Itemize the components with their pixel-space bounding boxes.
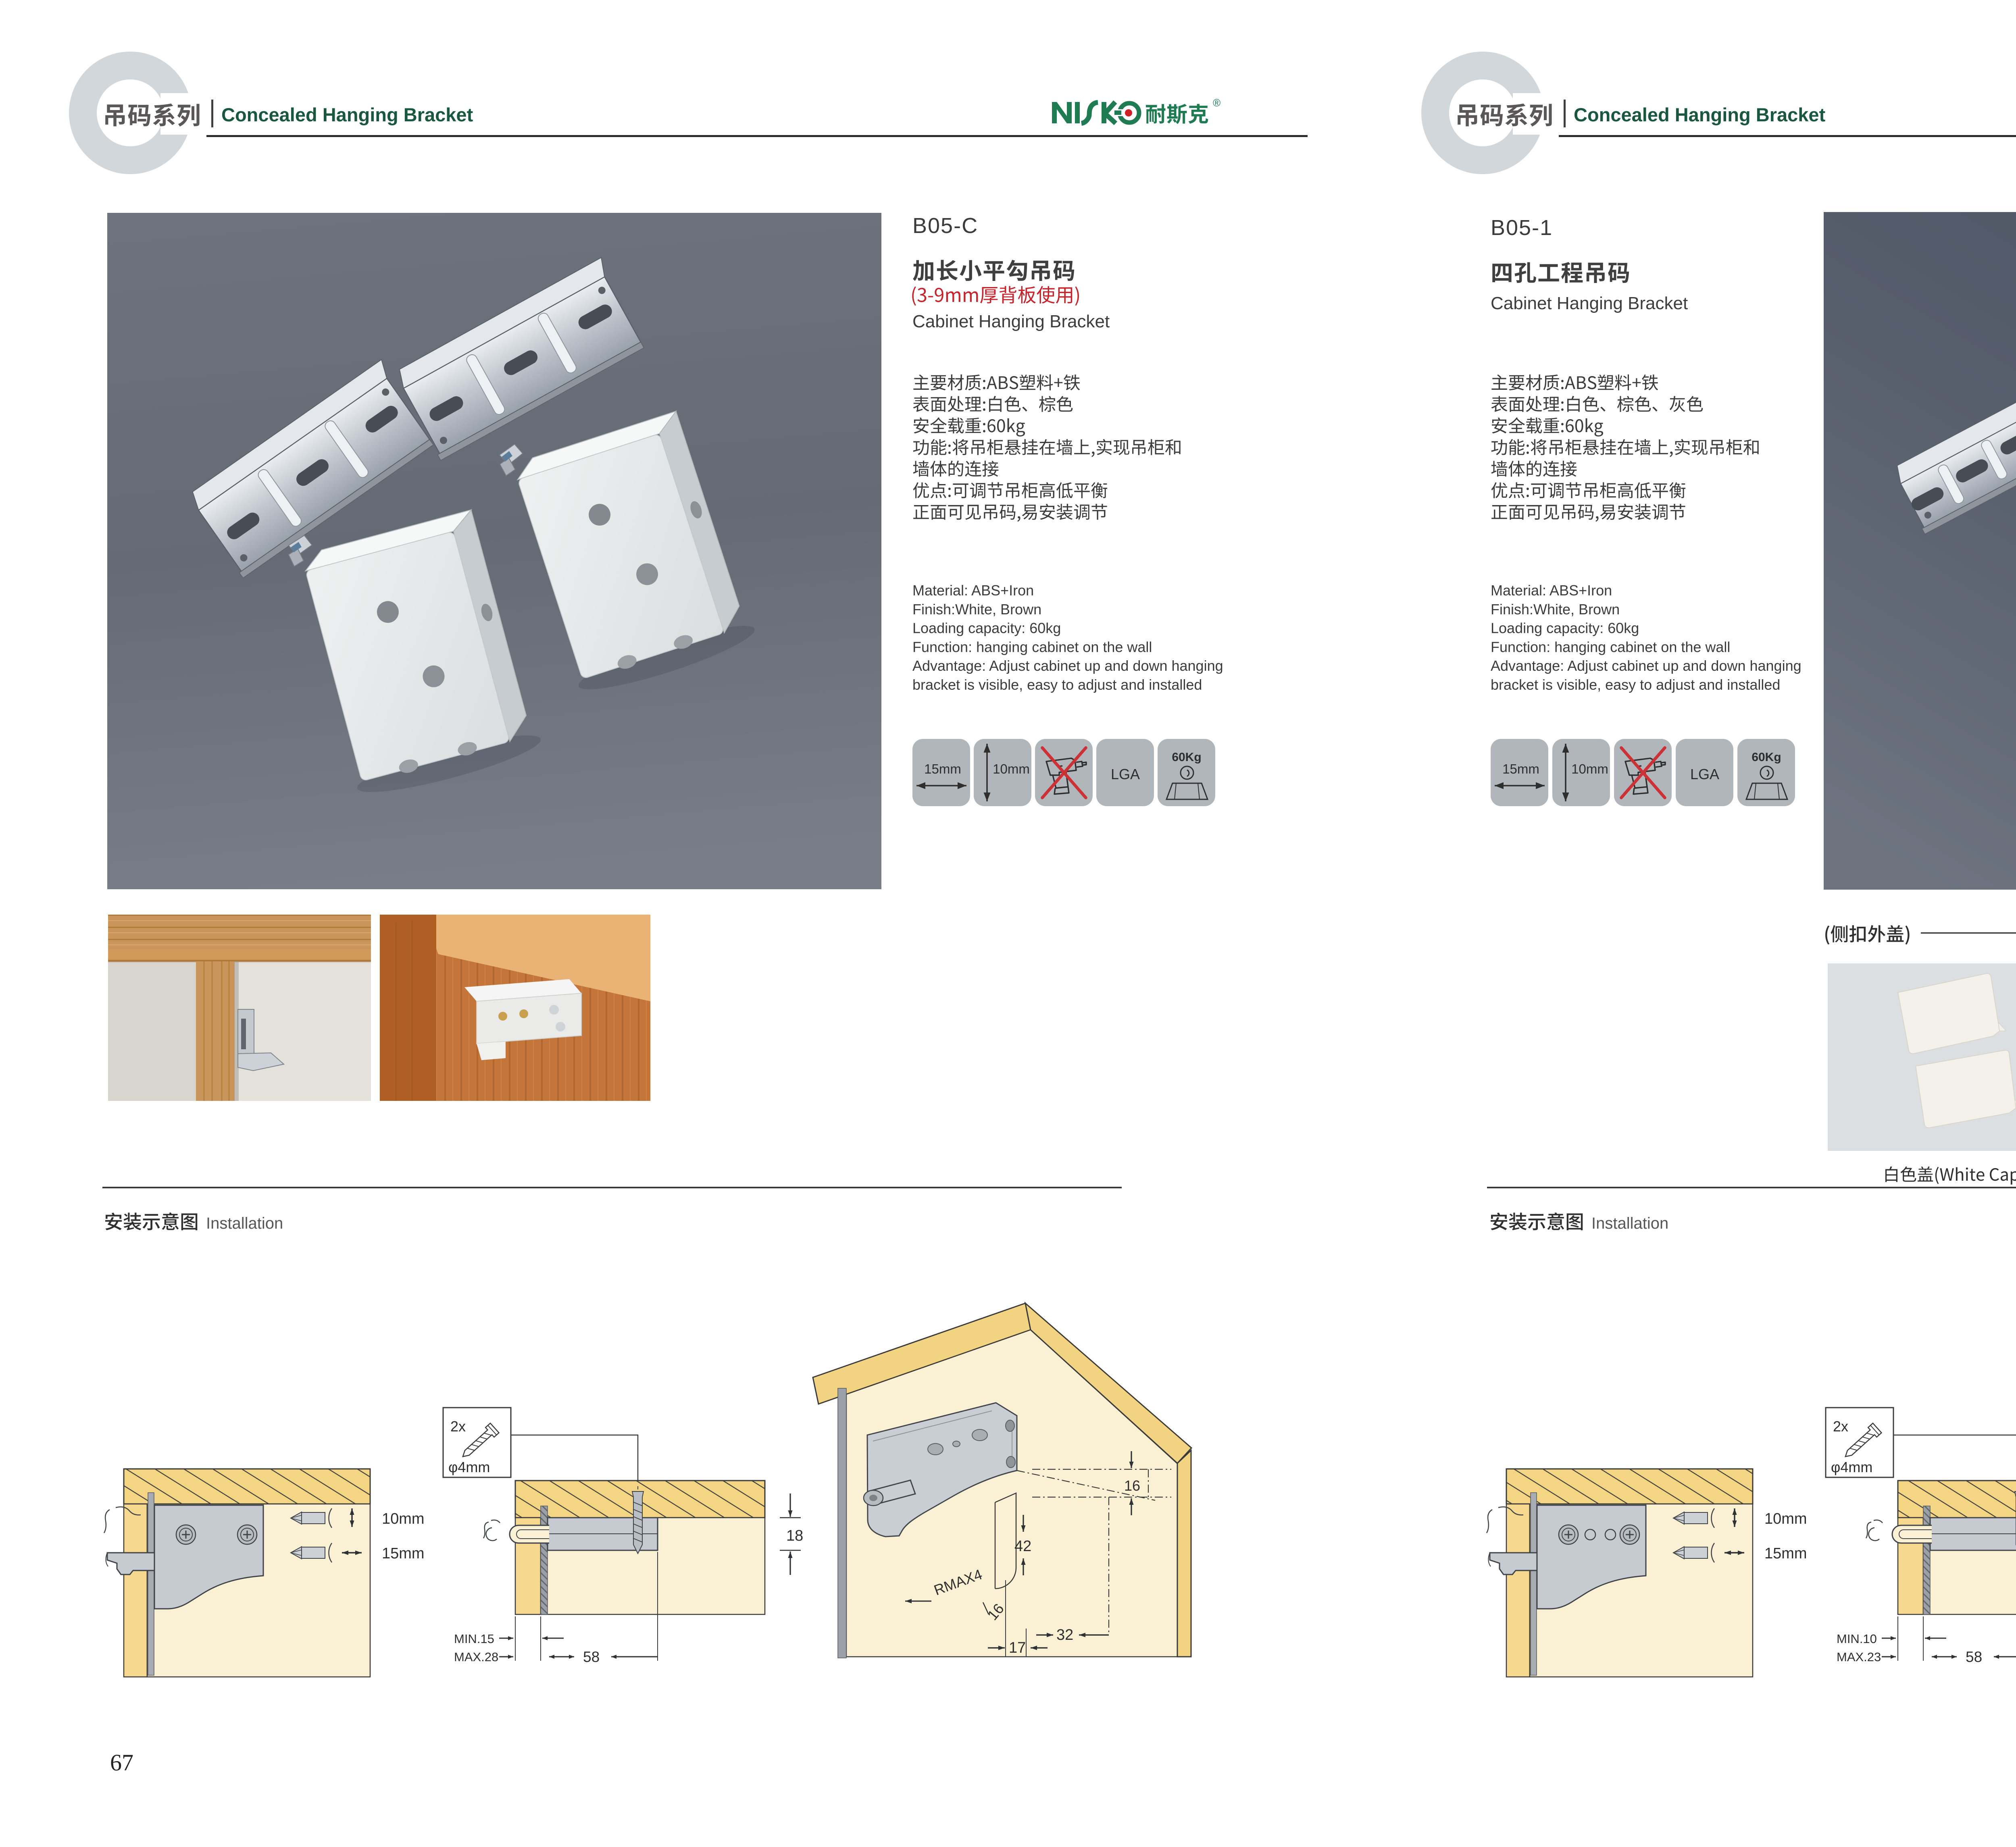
svg-text:B05-C: B05-C — [912, 214, 978, 238]
svg-text:Installation: Installation — [1591, 1215, 1668, 1232]
svg-text:67: 67 — [110, 1749, 133, 1776]
svg-text:15mm: 15mm — [382, 1545, 425, 1562]
svg-text:bracket is visible, easy to ad: bracket is visible, easy to adjust and i… — [912, 676, 1202, 693]
svg-text:Cabinet Hanging Bracket: Cabinet Hanging Bracket — [912, 312, 1110, 331]
svg-text:®: ® — [1213, 97, 1220, 109]
svg-text:B05-1: B05-1 — [1491, 216, 1553, 240]
svg-text:φ4mm: φ4mm — [1831, 1459, 1872, 1475]
svg-text:MIN.10: MIN.10 — [1837, 1632, 1877, 1646]
svg-text:φ4mm: φ4mm — [448, 1459, 490, 1475]
svg-text:Loading capacity: 60kg: Loading capacity: 60kg — [1491, 620, 1639, 636]
svg-text:Function: hanging cabinet on t: Function: hanging cabinet on the wall — [912, 639, 1152, 655]
svg-text:MAX.23: MAX.23 — [1837, 1650, 1881, 1664]
svg-text:Loading capacity: 60kg: Loading capacity: 60kg — [912, 620, 1061, 636]
svg-text:42: 42 — [1014, 1538, 1031, 1555]
svg-text:MIN.15: MIN.15 — [454, 1632, 494, 1646]
svg-text:Material: ABS+Iron: Material: ABS+Iron — [1491, 582, 1612, 599]
svg-text:Finish:White, Brown: Finish:White, Brown — [912, 601, 1041, 618]
svg-text:Function: hanging cabinet on t: Function: hanging cabinet on the wall — [1491, 639, 1730, 655]
svg-text:58: 58 — [583, 1649, 600, 1665]
svg-text:58: 58 — [1966, 1649, 1982, 1665]
svg-text:18: 18 — [786, 1527, 803, 1544]
svg-text:Material: ABS+Iron: Material: ABS+Iron — [912, 582, 1034, 599]
svg-text:MAX.28: MAX.28 — [454, 1650, 498, 1664]
svg-text:10mm: 10mm — [382, 1510, 425, 1527]
svg-text:Advantage: Adjust cabinet up a: Advantage: Adjust cabinet up and down ha… — [1491, 657, 1801, 674]
svg-text:32: 32 — [1056, 1627, 1073, 1643]
svg-text:16: 16 — [1124, 1477, 1140, 1494]
svg-text:bracket is visible, easy to ad: bracket is visible, easy to adjust and i… — [1491, 676, 1780, 693]
svg-text:2x: 2x — [1833, 1418, 1848, 1435]
svg-text:Finish:White, Brown: Finish:White, Brown — [1491, 601, 1620, 618]
svg-text:10mm: 10mm — [1764, 1510, 1807, 1527]
svg-text:Installation: Installation — [206, 1215, 283, 1232]
svg-text:Concealed Hanging Bracket: Concealed Hanging Bracket — [221, 104, 473, 125]
svg-text:Advantage: Adjust cabinet up a: Advantage: Adjust cabinet up and down ha… — [912, 657, 1223, 674]
svg-text:15mm: 15mm — [1764, 1545, 1807, 1562]
svg-text:Cabinet Hanging Bracket: Cabinet Hanging Bracket — [1491, 293, 1688, 313]
svg-text:17: 17 — [1009, 1639, 1026, 1656]
svg-text:Concealed Hanging Bracket: Concealed Hanging Bracket — [1574, 104, 1826, 125]
svg-text:2x: 2x — [450, 1418, 466, 1435]
